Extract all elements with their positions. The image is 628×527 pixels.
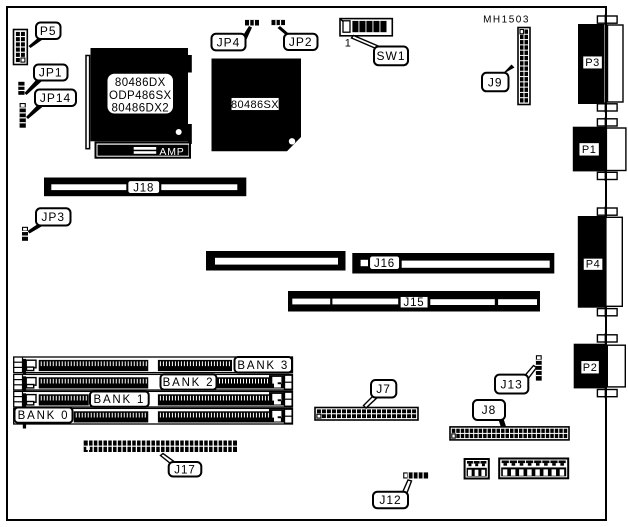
svg-text:P3: P3 <box>585 57 600 69</box>
svg-text:J18: J18 <box>133 182 154 194</box>
svg-text:J9: J9 <box>488 75 503 89</box>
svg-text:BANK 3: BANK 3 <box>237 360 289 372</box>
svg-text:JP4: JP4 <box>217 35 241 49</box>
svg-text:P5: P5 <box>40 24 57 38</box>
svg-text:80486SX: 80486SX <box>231 99 279 111</box>
svg-text:JP2: JP2 <box>289 35 313 49</box>
svg-text:1: 1 <box>345 38 351 50</box>
svg-text:JP3: JP3 <box>41 210 65 224</box>
svg-text:J16: J16 <box>374 258 395 270</box>
svg-text:SW1: SW1 <box>376 49 405 63</box>
svg-text:BANK 2: BANK 2 <box>163 377 215 389</box>
svg-text:ODP486SX: ODP486SX <box>109 90 172 102</box>
svg-text:J13: J13 <box>500 377 522 391</box>
svg-text:BANK 1: BANK 1 <box>93 394 145 406</box>
svg-text:JP1: JP1 <box>39 66 63 80</box>
svg-text:J15: J15 <box>404 297 425 309</box>
svg-text:BANK 0: BANK 0 <box>18 410 70 422</box>
svg-text:P2: P2 <box>583 362 598 374</box>
svg-text:J8: J8 <box>482 403 497 417</box>
svg-text:AMP: AMP <box>159 146 184 158</box>
svg-text:J17: J17 <box>174 464 196 476</box>
svg-text:J12: J12 <box>379 493 401 507</box>
svg-text:P4: P4 <box>586 258 601 270</box>
svg-text:80486DX: 80486DX <box>115 77 166 89</box>
svg-text:P1: P1 <box>582 144 597 156</box>
svg-text:MH1503: MH1503 <box>483 15 530 26</box>
svg-text:JP14: JP14 <box>40 91 71 105</box>
svg-text:J7: J7 <box>376 382 391 396</box>
svg-text:80486DX2: 80486DX2 <box>112 103 170 115</box>
